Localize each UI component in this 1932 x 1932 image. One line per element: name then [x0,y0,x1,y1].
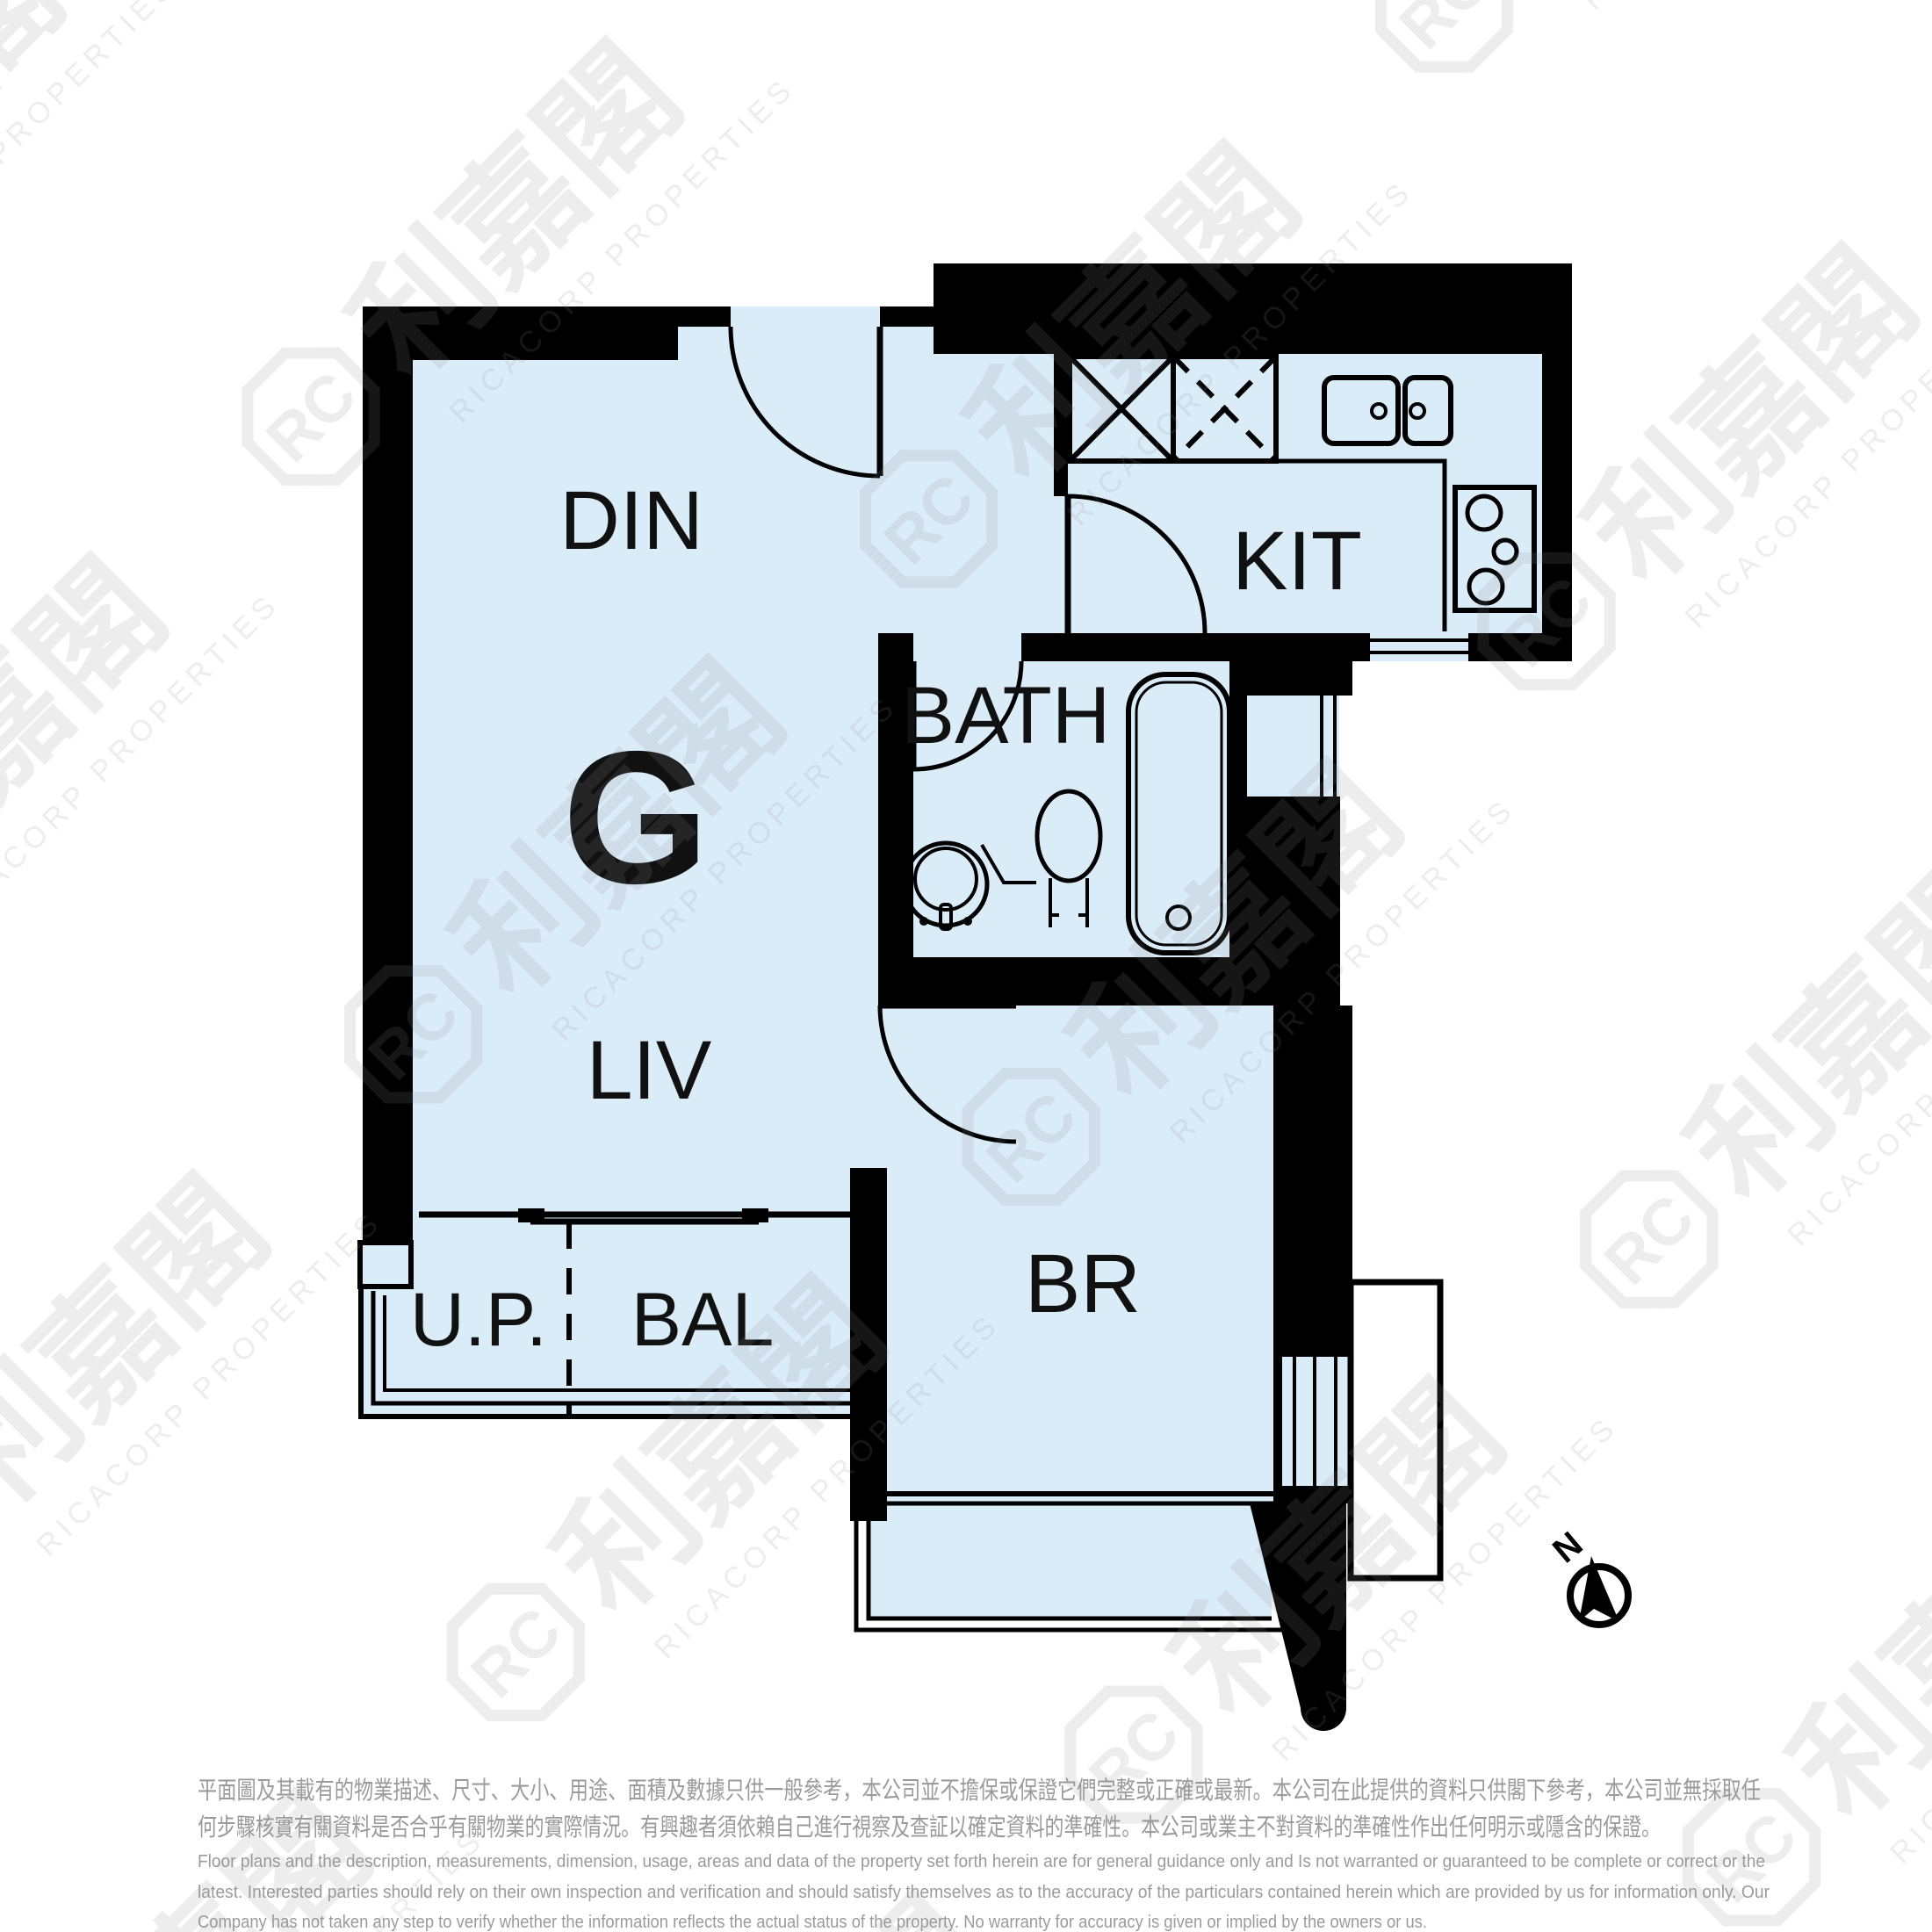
label-bath: BATH [901,671,1111,761]
north-compass: N [1546,1525,1628,1625]
wall-bath-top [1021,633,1370,661]
kitchen-bottom-window [1370,633,1468,661]
wall-entry-ledge-right [880,306,934,327]
watermark-tile [0,1091,389,1679]
balcony-step [360,1243,411,1287]
watermark-tile [730,0,1318,30]
watermark-tile [0,473,286,1062]
wall-corner-block [1245,661,1352,696]
compass-north-label: N [1546,1525,1590,1570]
basin-dot-left [919,917,928,926]
label-br: BR [1025,1237,1141,1330]
watermark-tile [0,0,184,443]
wall-bedroom-right [1273,1006,1352,1357]
floorplan-svg: RC 利嘉閣 RICACORP PROPERTIES [0,0,1932,1932]
basin-dot-right [963,917,972,926]
disclaimer: 平面圖及其載有的物業描述、尺寸、大小、用途、面積及數據只供一般參考，本公司並不擔… [198,1777,1770,1932]
wall-entry-ledge-left [678,306,731,327]
label-liv: LIV [587,1024,712,1117]
wall-window-strip-edge [1273,1357,1282,1486]
label-up: U.P. [410,1278,547,1362]
label-din: DIN [559,474,703,567]
label-kit: KIT [1232,515,1362,608]
watermark-tile [1347,0,1932,133]
disclaimer-zh-line1: 平面圖及其載有的物業描述、尺寸、大小、用途、面積及數據只供一般參考，本公司並不擔… [198,1777,1761,1804]
disclaimer-zh-line2: 何步驟核實有關資料是否合乎有關物業的實際情況。有興趣者須依賴自己進行視察及查証以… [198,1813,1661,1841]
floorplan-page: RC 利嘉閣 RICACORP PROPERTIES [0,0,1932,1932]
watermark-tile [1553,781,1932,1369]
